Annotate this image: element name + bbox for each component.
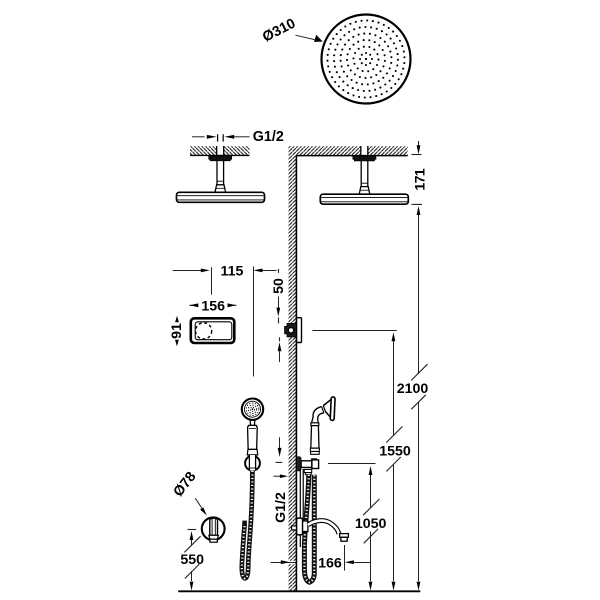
svg-text:91: 91 (169, 323, 185, 339)
svg-text:1550: 1550 (379, 443, 411, 459)
svg-text:50: 50 (271, 278, 287, 294)
svg-text:G1/2: G1/2 (273, 492, 289, 523)
svg-text:171: 171 (412, 168, 428, 190)
svg-text:1050: 1050 (355, 516, 387, 532)
svg-text:550: 550 (180, 552, 204, 568)
svg-text:156: 156 (201, 298, 225, 314)
svg-text:2100: 2100 (397, 381, 429, 397)
svg-text:115: 115 (221, 264, 244, 280)
svg-text:G1/2: G1/2 (253, 129, 284, 145)
svg-text:166: 166 (318, 555, 342, 571)
